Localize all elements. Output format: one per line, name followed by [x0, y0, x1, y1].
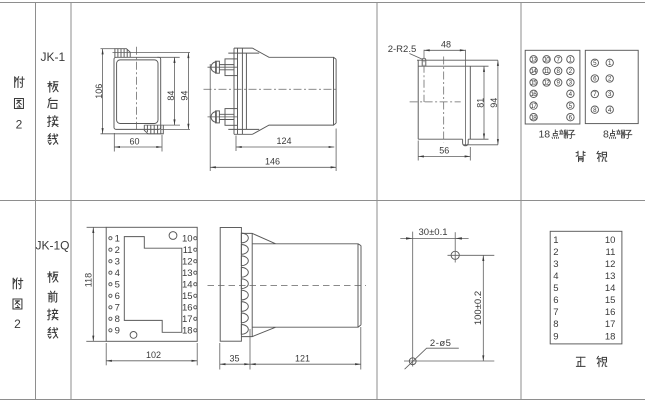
- svg-text:9: 9: [556, 80, 560, 87]
- svg-text:60: 60: [129, 136, 139, 146]
- svg-text:18: 18: [538, 129, 550, 141]
- svg-text:15: 15: [605, 295, 616, 306]
- svg-text:5: 5: [569, 103, 573, 110]
- svg-text:18: 18: [182, 326, 193, 337]
- svg-text:5: 5: [553, 283, 558, 294]
- svg-text:9: 9: [553, 331, 558, 342]
- svg-text:5: 5: [115, 280, 120, 291]
- svg-text:7: 7: [553, 307, 558, 318]
- svg-text:48: 48: [441, 40, 451, 50]
- svg-text:106: 106: [94, 84, 104, 99]
- svg-text:4: 4: [569, 91, 573, 98]
- svg-text:8: 8: [553, 319, 558, 330]
- svg-text:94: 94: [489, 98, 499, 108]
- svg-text:8: 8: [115, 314, 120, 325]
- svg-text:124: 124: [276, 136, 291, 146]
- svg-text:35: 35: [229, 353, 239, 363]
- svg-text:2: 2: [115, 245, 120, 256]
- svg-text:118: 118: [83, 273, 93, 287]
- svg-text:3: 3: [569, 80, 573, 87]
- svg-text:JK-1Q: JK-1Q: [35, 239, 69, 253]
- svg-text:8: 8: [556, 68, 560, 75]
- svg-text:4: 4: [608, 107, 612, 114]
- svg-text:6: 6: [115, 291, 120, 302]
- svg-text:2-ø5: 2-ø5: [430, 338, 452, 349]
- svg-text:146: 146: [265, 156, 280, 166]
- svg-text:7: 7: [593, 91, 597, 98]
- svg-text:2-R2.5: 2-R2.5: [388, 44, 417, 55]
- svg-text:4: 4: [115, 268, 120, 279]
- svg-text:100±0.2: 100±0.2: [473, 291, 484, 325]
- svg-text:2: 2: [608, 76, 612, 83]
- svg-text:7: 7: [115, 303, 120, 314]
- svg-text:17: 17: [605, 319, 616, 330]
- svg-text:14: 14: [182, 280, 193, 291]
- svg-text:8: 8: [593, 107, 597, 114]
- svg-text:84: 84: [166, 91, 176, 101]
- svg-text:15: 15: [182, 291, 193, 302]
- svg-text:5: 5: [593, 60, 597, 67]
- svg-text:3: 3: [553, 259, 558, 270]
- svg-text:9: 9: [115, 326, 120, 337]
- svg-text:11: 11: [183, 245, 193, 256]
- svg-text:6: 6: [553, 295, 558, 306]
- svg-text:3: 3: [608, 91, 612, 98]
- svg-text:17: 17: [182, 314, 193, 325]
- svg-text:8: 8: [603, 129, 609, 141]
- svg-text:1: 1: [115, 234, 120, 245]
- svg-text:6: 6: [593, 76, 597, 83]
- svg-text:14: 14: [605, 283, 616, 294]
- svg-text:12: 12: [605, 259, 616, 270]
- svg-text:JK-1: JK-1: [40, 50, 65, 64]
- svg-text:30±0.1: 30±0.1: [419, 227, 448, 238]
- svg-text:10: 10: [182, 234, 193, 245]
- svg-text:102: 102: [146, 350, 161, 360]
- svg-text:18: 18: [605, 331, 616, 342]
- svg-text:1: 1: [608, 60, 612, 67]
- svg-text:4: 4: [553, 271, 558, 282]
- svg-text:11: 11: [606, 247, 616, 258]
- svg-text:6: 6: [569, 114, 573, 121]
- svg-text:121: 121: [295, 353, 310, 363]
- svg-text:56: 56: [439, 146, 449, 156]
- svg-text:94: 94: [180, 91, 190, 101]
- svg-text:81: 81: [475, 98, 485, 108]
- svg-text:2: 2: [569, 68, 573, 75]
- svg-text:12: 12: [182, 257, 193, 268]
- svg-text:13: 13: [605, 271, 616, 282]
- svg-text:7: 7: [556, 57, 560, 64]
- svg-text:16: 16: [182, 303, 193, 314]
- svg-text:1: 1: [569, 57, 573, 64]
- svg-text:2: 2: [553, 247, 558, 258]
- svg-text:3: 3: [115, 257, 120, 268]
- svg-text:2: 2: [14, 317, 21, 331]
- svg-text:1: 1: [553, 235, 558, 246]
- svg-text:13: 13: [182, 268, 193, 279]
- svg-text:2: 2: [16, 117, 23, 131]
- svg-text:16: 16: [605, 307, 616, 318]
- svg-text:10: 10: [605, 235, 616, 246]
